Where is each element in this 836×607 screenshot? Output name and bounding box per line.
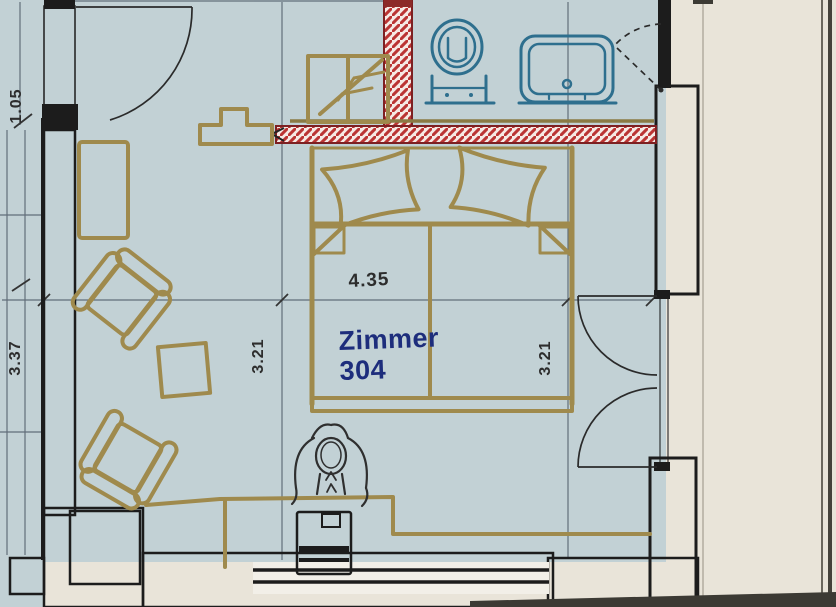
red-wall-horizontal bbox=[276, 126, 656, 143]
entry-door-jamb bbox=[42, 104, 78, 130]
dimension-outer-left: 3.37 bbox=[7, 340, 25, 375]
bathroom-door-jamb bbox=[658, 0, 671, 88]
dimension-bed-wall: 4.35 bbox=[348, 269, 390, 293]
room-number: 304 bbox=[339, 352, 441, 385]
dimension-entry-opening: 1.05 bbox=[8, 88, 26, 123]
dimension-inner-right: 3.21 bbox=[537, 340, 555, 375]
room-name: Zimmer bbox=[338, 322, 440, 355]
floorplan-drawing bbox=[0, 0, 836, 607]
dimension-inner-left: 3.21 bbox=[250, 338, 268, 373]
room-label: Zimmer 304 bbox=[338, 322, 441, 385]
floorplan-photo: 1.05 3.37 3.21 3.21 4.35 Zimmer 304 bbox=[0, 0, 836, 607]
room-floor bbox=[0, 0, 666, 607]
